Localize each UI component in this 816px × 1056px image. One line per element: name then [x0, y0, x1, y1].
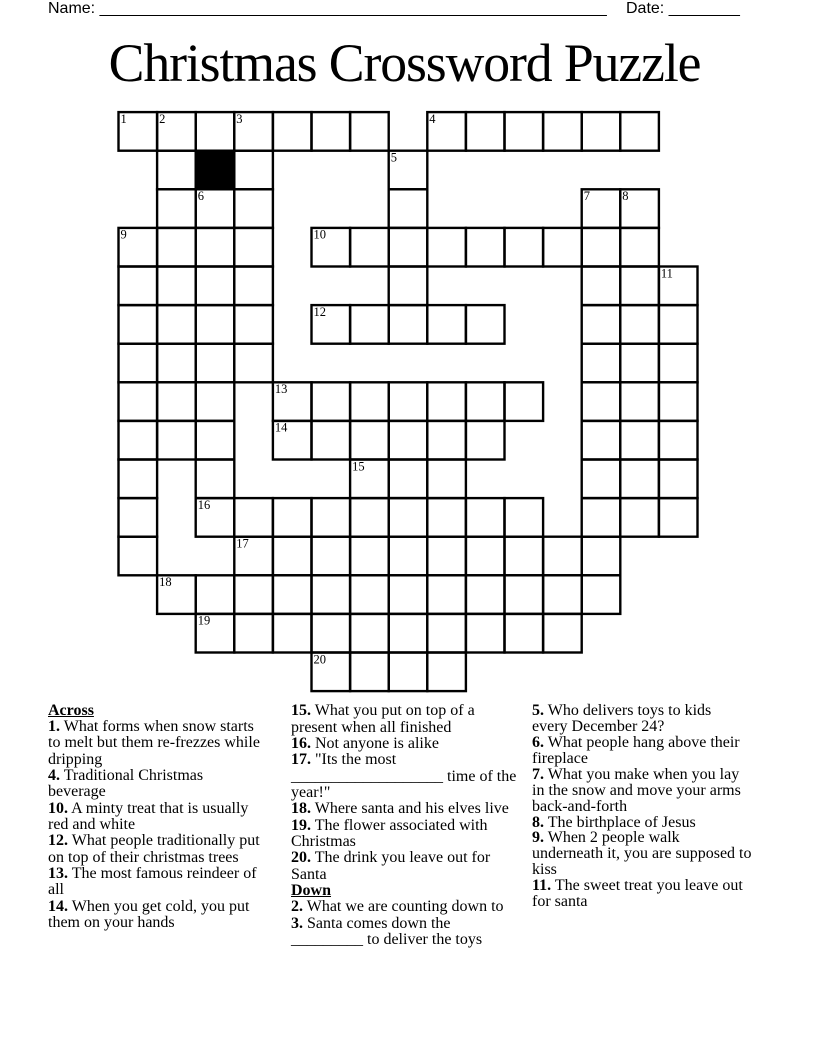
svg-text:17: 17 — [236, 537, 249, 551]
svg-text:19: 19 — [198, 614, 211, 628]
svg-text:20: 20 — [314, 652, 327, 666]
svg-text:6: 6 — [198, 189, 204, 203]
svg-text:1: 1 — [121, 112, 127, 126]
svg-text:18: 18 — [159, 575, 172, 589]
svg-text:11: 11 — [661, 266, 673, 280]
svg-text:10: 10 — [314, 228, 327, 242]
svg-text:13: 13 — [275, 382, 288, 396]
svg-text:4: 4 — [429, 112, 436, 126]
svg-text:14: 14 — [275, 421, 288, 435]
svg-text:16: 16 — [198, 498, 211, 512]
svg-text:9: 9 — [121, 228, 127, 242]
svg-text:15: 15 — [352, 459, 365, 473]
svg-text:2: 2 — [159, 112, 165, 126]
svg-text:12: 12 — [314, 305, 327, 319]
svg-text:3: 3 — [236, 112, 242, 126]
svg-text:5: 5 — [391, 151, 397, 165]
svg-text:7: 7 — [584, 189, 590, 203]
svg-text:8: 8 — [622, 189, 628, 203]
